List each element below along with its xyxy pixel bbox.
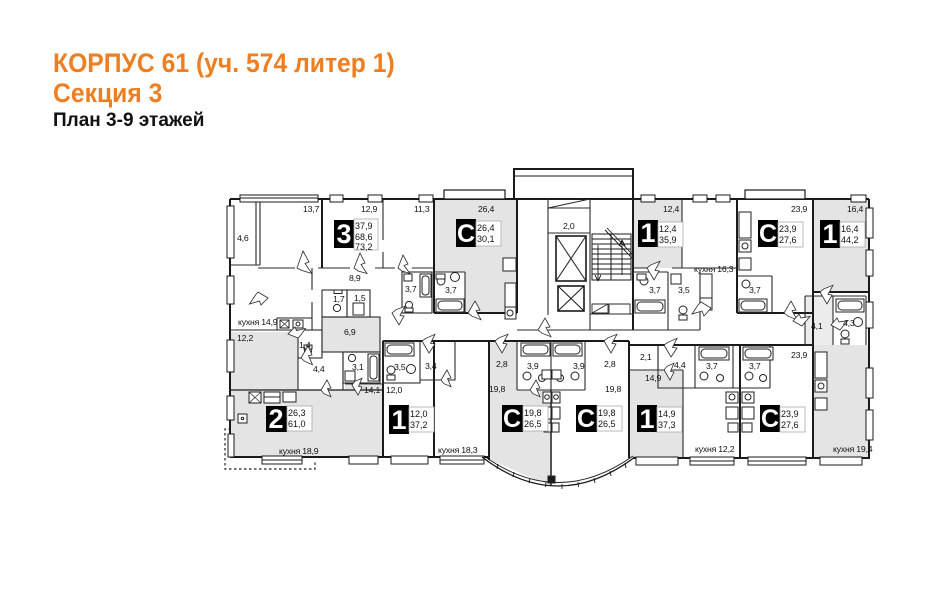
svg-text:3,9: 3,9 <box>573 361 585 371</box>
svg-text:14,9: 14,9 <box>658 409 676 419</box>
svg-text:37,3: 37,3 <box>658 420 676 430</box>
svg-text:1: 1 <box>822 219 837 249</box>
svg-text:1,7: 1,7 <box>333 294 345 304</box>
svg-text:35,9: 35,9 <box>659 235 677 245</box>
svg-text:30,1: 30,1 <box>477 234 495 244</box>
svg-text:23,9: 23,9 <box>791 350 807 360</box>
svg-text:19,8: 19,8 <box>605 384 621 394</box>
svg-text:73,2: 73,2 <box>355 242 373 252</box>
svg-text:3,9: 3,9 <box>527 361 539 371</box>
svg-text:26,4: 26,4 <box>477 223 495 233</box>
svg-text:3,7: 3,7 <box>749 361 761 371</box>
svg-text:1: 1 <box>391 405 406 435</box>
svg-text:16,4: 16,4 <box>847 204 863 214</box>
svg-text:С: С <box>503 405 521 433</box>
svg-text:4,4: 4,4 <box>674 360 686 370</box>
svg-text:61,0: 61,0 <box>288 419 306 429</box>
svg-text:19,8: 19,8 <box>598 408 616 418</box>
svg-text:кухня 18,9: кухня 18,9 <box>279 446 319 456</box>
svg-text:4,4: 4,4 <box>313 364 325 374</box>
svg-text:1: 1 <box>640 218 655 248</box>
svg-text:37,2: 37,2 <box>410 420 428 430</box>
svg-text:26,3: 26,3 <box>288 408 306 418</box>
svg-text:3,1: 3,1 <box>352 362 364 372</box>
svg-text:С: С <box>457 220 475 248</box>
svg-text:С: С <box>761 405 779 433</box>
svg-text:3,7: 3,7 <box>749 285 761 295</box>
svg-text:3,7: 3,7 <box>445 285 457 295</box>
svg-text:23,9: 23,9 <box>779 224 797 234</box>
svg-text:1: 1 <box>639 404 654 434</box>
svg-text:2: 2 <box>268 404 283 434</box>
svg-text:19,8: 19,8 <box>489 384 505 394</box>
svg-text:14,9: 14,9 <box>645 373 661 383</box>
svg-text:2,1: 2,1 <box>640 352 652 362</box>
svg-text:2,8: 2,8 <box>604 359 616 369</box>
svg-text:3,7: 3,7 <box>405 284 417 294</box>
svg-text:44,2: 44,2 <box>841 235 859 245</box>
svg-text:кухня 18,3: кухня 18,3 <box>438 445 478 455</box>
svg-text:2,0: 2,0 <box>563 221 575 231</box>
svg-text:27,6: 27,6 <box>781 420 799 430</box>
svg-text:3,5: 3,5 <box>394 362 406 372</box>
svg-text:4,6: 4,6 <box>237 233 249 243</box>
svg-text:16,4: 16,4 <box>841 224 859 234</box>
svg-text:кухня 19,4: кухня 19,4 <box>833 444 873 454</box>
svg-text:14,1: 14,1 <box>364 385 380 395</box>
svg-text:кухня 16,3: кухня 16,3 <box>694 264 734 274</box>
svg-text:С: С <box>759 220 777 248</box>
svg-text:68,6: 68,6 <box>355 232 373 242</box>
svg-text:12,2: 12,2 <box>237 333 253 343</box>
svg-text:26,4: 26,4 <box>478 204 494 214</box>
svg-text:23,9: 23,9 <box>781 409 799 419</box>
svg-text:3,7: 3,7 <box>649 285 661 295</box>
svg-text:3,5: 3,5 <box>678 285 690 295</box>
svg-text:19,8: 19,8 <box>524 408 542 418</box>
svg-text:12,4: 12,4 <box>663 204 679 214</box>
svg-text:3,4: 3,4 <box>425 361 437 371</box>
svg-text:кухня 12,2: кухня 12,2 <box>695 444 735 454</box>
svg-text:кухня 14,9: кухня 14,9 <box>238 317 278 327</box>
svg-text:1,4: 1,4 <box>299 340 311 350</box>
svg-text:3: 3 <box>336 219 351 249</box>
svg-text:11,3: 11,3 <box>414 204 430 214</box>
svg-text:12,0: 12,0 <box>386 385 402 395</box>
svg-text:С: С <box>577 405 595 433</box>
svg-text:37,9: 37,9 <box>355 221 373 231</box>
svg-text:2,8: 2,8 <box>496 359 508 369</box>
svg-text:4,3: 4,3 <box>843 318 855 328</box>
svg-text:4,1: 4,1 <box>811 321 823 331</box>
svg-text:6,9: 6,9 <box>344 327 356 337</box>
svg-text:8,9: 8,9 <box>349 273 361 283</box>
svg-text:12,4: 12,4 <box>659 224 677 234</box>
svg-text:23,9: 23,9 <box>791 204 807 214</box>
svg-text:1,5: 1,5 <box>354 293 366 303</box>
svg-text:12,9: 12,9 <box>361 204 377 214</box>
svg-text:12,0: 12,0 <box>410 409 428 419</box>
svg-text:26,5: 26,5 <box>524 419 542 429</box>
svg-text:26,5: 26,5 <box>598 419 616 429</box>
svg-text:27,6: 27,6 <box>779 235 797 245</box>
svg-text:3,7: 3,7 <box>706 361 718 371</box>
svg-text:13,7: 13,7 <box>303 204 319 214</box>
